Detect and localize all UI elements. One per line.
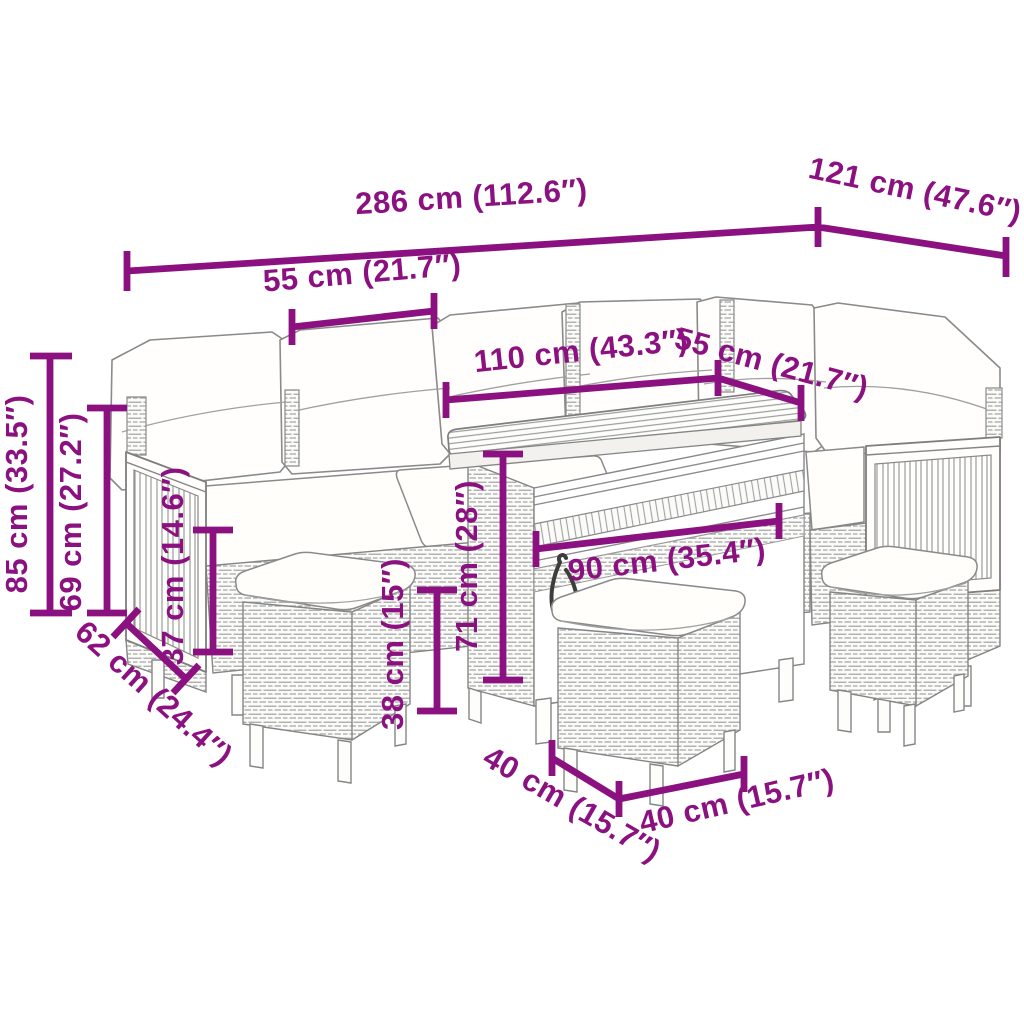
dimension-diagram: 286 cm (112.6″) 121 cm (47.6″) 55 cm (21… <box>0 0 1024 1024</box>
dim-label-left-seat-width: 55 cm (21.7″) <box>262 246 463 298</box>
dim-label-total-width: 286 cm (112.6″) <box>354 172 588 222</box>
back-pillow-2 <box>280 318 452 474</box>
dim-label-back-height: 85 cm (33.5″) <box>0 395 34 594</box>
dim-label-stool-height: 38 cm (15″) <box>375 558 410 730</box>
dimension-diagram-svg: 286 cm (112.6″) 121 cm (47.6″) 55 cm (21… <box>0 0 1024 1024</box>
seat-cushion-right <box>806 447 864 530</box>
dim-label-side-section-depth: 121 cm (47.6″) <box>806 150 1024 229</box>
dim-label-table-height: 71 cm (28″) <box>449 480 484 652</box>
stool-right <box>822 546 977 746</box>
dim-label-armrest-height: 69 cm (27.2″) <box>53 413 88 612</box>
dim-label-seat-height: 37 cm (14.6″) <box>155 467 190 666</box>
